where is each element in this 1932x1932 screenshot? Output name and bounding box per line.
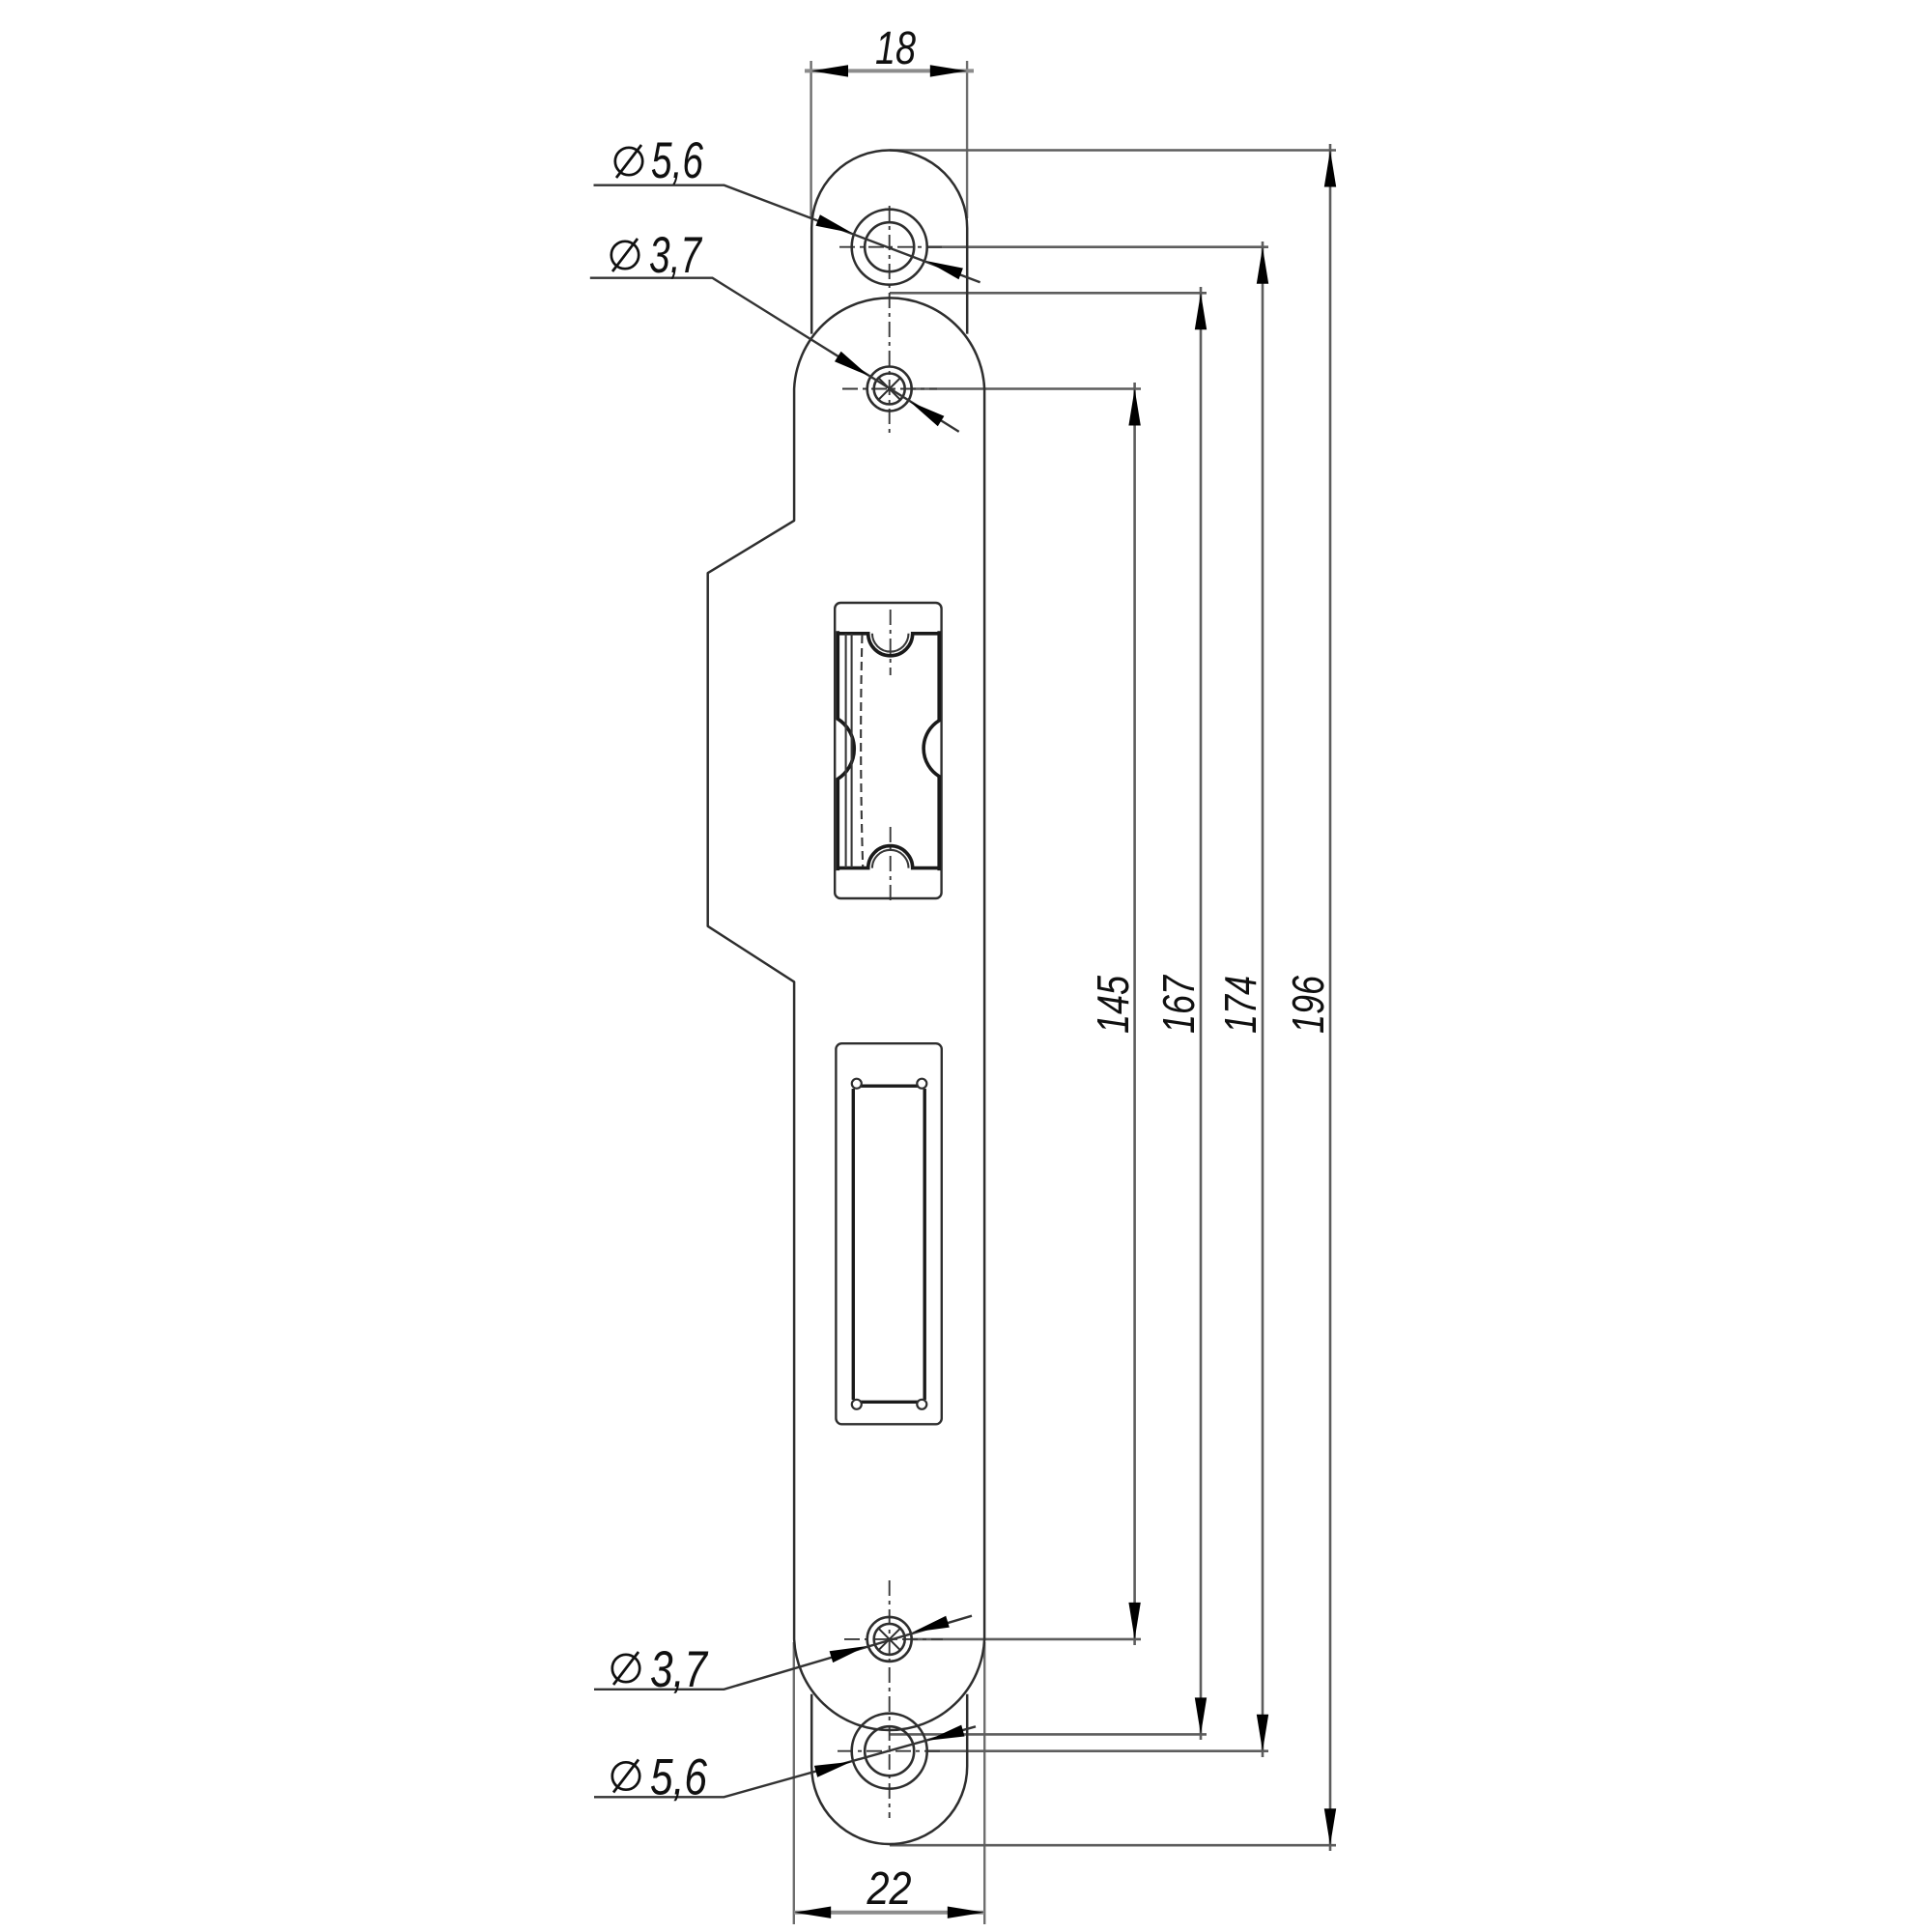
svg-text:18: 18 xyxy=(875,23,916,74)
svg-text:3,7: 3,7 xyxy=(649,227,703,284)
svg-text:22: 22 xyxy=(867,1863,912,1915)
svg-text:5,6: 5,6 xyxy=(650,1749,707,1806)
svg-text:174: 174 xyxy=(1215,976,1265,1034)
svg-text:5,6: 5,6 xyxy=(651,132,703,189)
svg-text:196: 196 xyxy=(1283,976,1333,1034)
svg-text:167: 167 xyxy=(1153,975,1204,1034)
svg-text:3,7: 3,7 xyxy=(650,1641,709,1698)
svg-text:145: 145 xyxy=(1088,976,1138,1034)
